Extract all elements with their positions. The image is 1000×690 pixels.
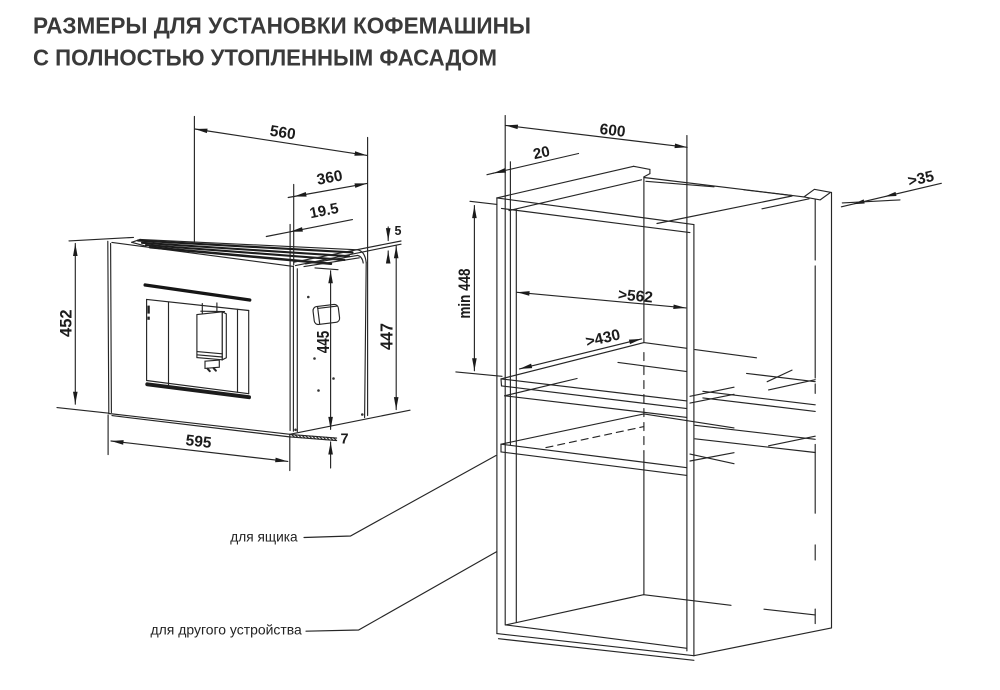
svg-text:20: 20 — [532, 143, 552, 163]
svg-text:min 448: min 448 — [456, 269, 474, 319]
svg-text:447: 447 — [377, 323, 397, 350]
svg-text:19.5: 19.5 — [308, 200, 340, 222]
svg-text:>562: >562 — [617, 286, 653, 306]
svg-text:С ПОЛНОСТЬЮ УТОПЛЕННЫМ ФАСАДОМ: С ПОЛНОСТЬЮ УТОПЛЕННЫМ ФАСАДОМ — [33, 45, 497, 71]
svg-text:7: 7 — [340, 432, 348, 448]
svg-text:>35: >35 — [906, 168, 936, 190]
svg-text:РАЗМЕРЫ ДЛЯ УСТАНОВКИ КОФЕМАШИ: РАЗМЕРЫ ДЛЯ УСТАНОВКИ КОФЕМАШИНЫ — [33, 13, 531, 39]
svg-text:445: 445 — [313, 331, 333, 354]
svg-text:600: 600 — [599, 121, 627, 141]
svg-text:для другого устройства: для другого устройства — [151, 621, 303, 637]
svg-text:452: 452 — [57, 309, 76, 337]
svg-text:560: 560 — [269, 123, 297, 144]
svg-text:для ящика: для ящика — [230, 529, 298, 545]
svg-text:5: 5 — [395, 224, 402, 238]
svg-text:360: 360 — [315, 167, 343, 188]
svg-text:>430: >430 — [584, 326, 622, 350]
svg-text:595: 595 — [185, 432, 213, 452]
